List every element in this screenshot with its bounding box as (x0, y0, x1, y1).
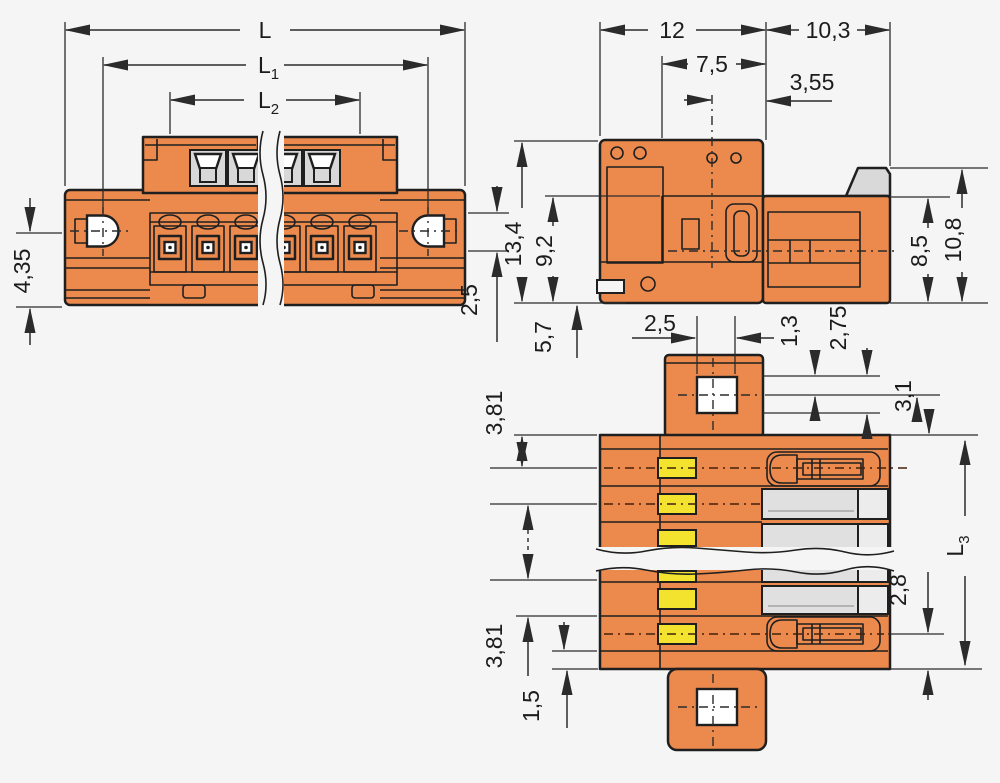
bottom-locating-tab (668, 669, 766, 750)
dim-label-12: 12 (659, 17, 685, 43)
dimension-4-35: 4,35 (9, 198, 62, 345)
side-view: 12 10,3 7,5 3,55 13,4 (500, 17, 988, 358)
dimension-7-5: 7,5 (662, 51, 765, 138)
dimension-3-81-bottom: 3,81 (481, 616, 597, 676)
dimension-2-8: 2,8 (885, 572, 944, 700)
dim-label-3-81-bottom: 3,81 (481, 624, 507, 669)
dim-label-L1: L1 (258, 52, 279, 83)
dim-label-10-8: 10,8 (940, 218, 966, 263)
dim-label-2-5-bottom: 2,5 (644, 310, 676, 336)
dim-label-2-5-front: 2,5 (456, 284, 482, 316)
side-latch (846, 168, 890, 196)
dim-label-7-5: 7,5 (696, 51, 728, 77)
side-bottom-notch (597, 280, 624, 293)
bottom-view: 2,5 1,3 2,75 3,1 L3 (481, 306, 982, 750)
pitch-continuation-arrows (490, 504, 597, 580)
dim-label-1-5: 1,5 (518, 690, 544, 722)
dimension-1-3: 1,3 (763, 315, 880, 420)
technical-drawing-canvas: L L1 L2 4,35 2,5 (0, 0, 1000, 783)
dimension-12: 12 (600, 17, 766, 140)
dimension-L2: L2 (170, 87, 360, 134)
dim-label-10-3: 10,3 (806, 17, 851, 43)
dim-label-2-8: 2,8 (885, 574, 911, 606)
dimension-L3: L3 (890, 441, 982, 669)
dim-label-4-35: 4,35 (9, 249, 35, 294)
dim-label-2-75: 2,75 (825, 306, 851, 351)
dim-label-3-1: 3,1 (890, 380, 916, 412)
front-break-lines (258, 128, 284, 310)
dim-label-9-2: 9,2 (531, 235, 557, 267)
dimension-1-5: 1,5 (518, 669, 598, 728)
dim-label-L2: L2 (258, 87, 279, 118)
dimension-3-81-top: 3,81 (481, 391, 597, 468)
dim-label-L: L (259, 17, 272, 43)
dim-label-3-81-top: 3,81 (481, 391, 507, 436)
dim-label-8-5: 8,5 (906, 235, 932, 267)
dimension-3-1: 3,1 (765, 380, 978, 435)
connector-dimension-drawing: L L1 L2 4,35 2,5 (0, 0, 1000, 783)
top-locating-tab (665, 355, 763, 437)
dim-label-1-3: 1,3 (776, 315, 802, 347)
front-view: L L1 L2 4,35 2,5 (9, 17, 514, 345)
dimension-5-7: 5,7 (530, 306, 577, 358)
dim-label-L3: L3 (942, 535, 973, 556)
dim-label-5-7: 5,7 (530, 321, 556, 353)
dim-label-13-4: 13,4 (500, 221, 526, 266)
dim-label-3-55: 3,55 (790, 69, 835, 95)
